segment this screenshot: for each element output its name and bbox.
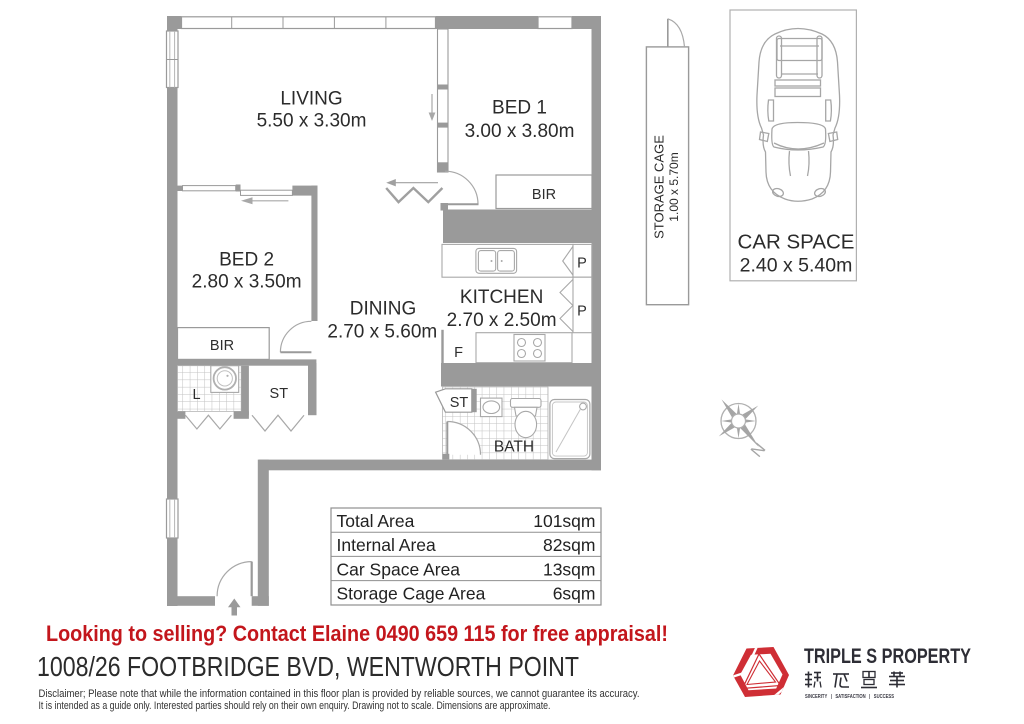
svg-text:2.80 x 3.50m: 2.80 x 3.50m xyxy=(192,272,302,293)
svg-text:CAR SPACE: CAR SPACE xyxy=(738,231,855,254)
svg-text:1.00 x 5.70m: 1.00 x 5.70m xyxy=(667,152,681,221)
svg-text:ST: ST xyxy=(270,386,289,402)
svg-text:BIR: BIR xyxy=(532,187,556,203)
svg-text:13sqm: 13sqm xyxy=(543,559,596,579)
svg-text:L: L xyxy=(192,387,200,403)
svg-text:TRIPLE S PROPERTY: TRIPLE S PROPERTY xyxy=(804,644,971,668)
svg-text:2.40 x 5.40m: 2.40 x 5.40m xyxy=(740,255,853,277)
svg-text:Total Area: Total Area xyxy=(337,511,415,531)
svg-text:It is intended as a guide only: It is intended as a guide only. Interest… xyxy=(39,700,551,712)
svg-text:Car Space Area: Car Space Area xyxy=(337,559,461,579)
svg-text:BED 2: BED 2 xyxy=(219,250,274,271)
svg-text:BIR: BIR xyxy=(210,338,234,354)
svg-text:P: P xyxy=(577,304,587,320)
svg-text:STORAGE CAGE: STORAGE CAGE xyxy=(652,135,667,239)
svg-text:Looking to selling? Contact El: Looking to selling? Contact Elaine 0490 … xyxy=(46,621,668,646)
svg-text:BED 1: BED 1 xyxy=(492,98,547,119)
svg-text:2.70 x 2.50m: 2.70 x 2.50m xyxy=(447,310,557,331)
svg-text:5.50 x 3.30m: 5.50 x 3.30m xyxy=(257,111,367,132)
svg-text:3.00 x 3.80m: 3.00 x 3.80m xyxy=(465,121,575,142)
svg-text:Storage Cage Area: Storage Cage Area xyxy=(337,584,486,604)
svg-text:ST: ST xyxy=(450,395,469,411)
svg-text:Internal Area: Internal Area xyxy=(337,535,436,555)
svg-text:DINING: DINING xyxy=(350,299,417,320)
svg-text:LIVING: LIVING xyxy=(280,89,342,110)
svg-text:101sqm: 101sqm xyxy=(533,511,595,531)
svg-text:Disclaimer; Please note that w: Disclaimer; Please note that while the i… xyxy=(39,688,640,700)
svg-text:KITCHEN: KITCHEN xyxy=(460,287,543,308)
svg-text:82sqm: 82sqm xyxy=(543,535,596,555)
svg-text:1008/26 FOOTBRIDGE BVD, WENTWO: 1008/26 FOOTBRIDGE BVD, WENTWORTH POINT xyxy=(37,651,579,682)
svg-text:6sqm: 6sqm xyxy=(553,584,596,604)
svg-text:SINCERITY | SATISFACTION: SINCERITY | SATISFACTION | SUCCESS xyxy=(805,694,894,700)
svg-text:P: P xyxy=(577,256,587,272)
svg-text:2.70 x 5.60m: 2.70 x 5.60m xyxy=(327,322,437,343)
svg-text:F: F xyxy=(454,345,463,361)
svg-text:BATH: BATH xyxy=(494,439,534,456)
